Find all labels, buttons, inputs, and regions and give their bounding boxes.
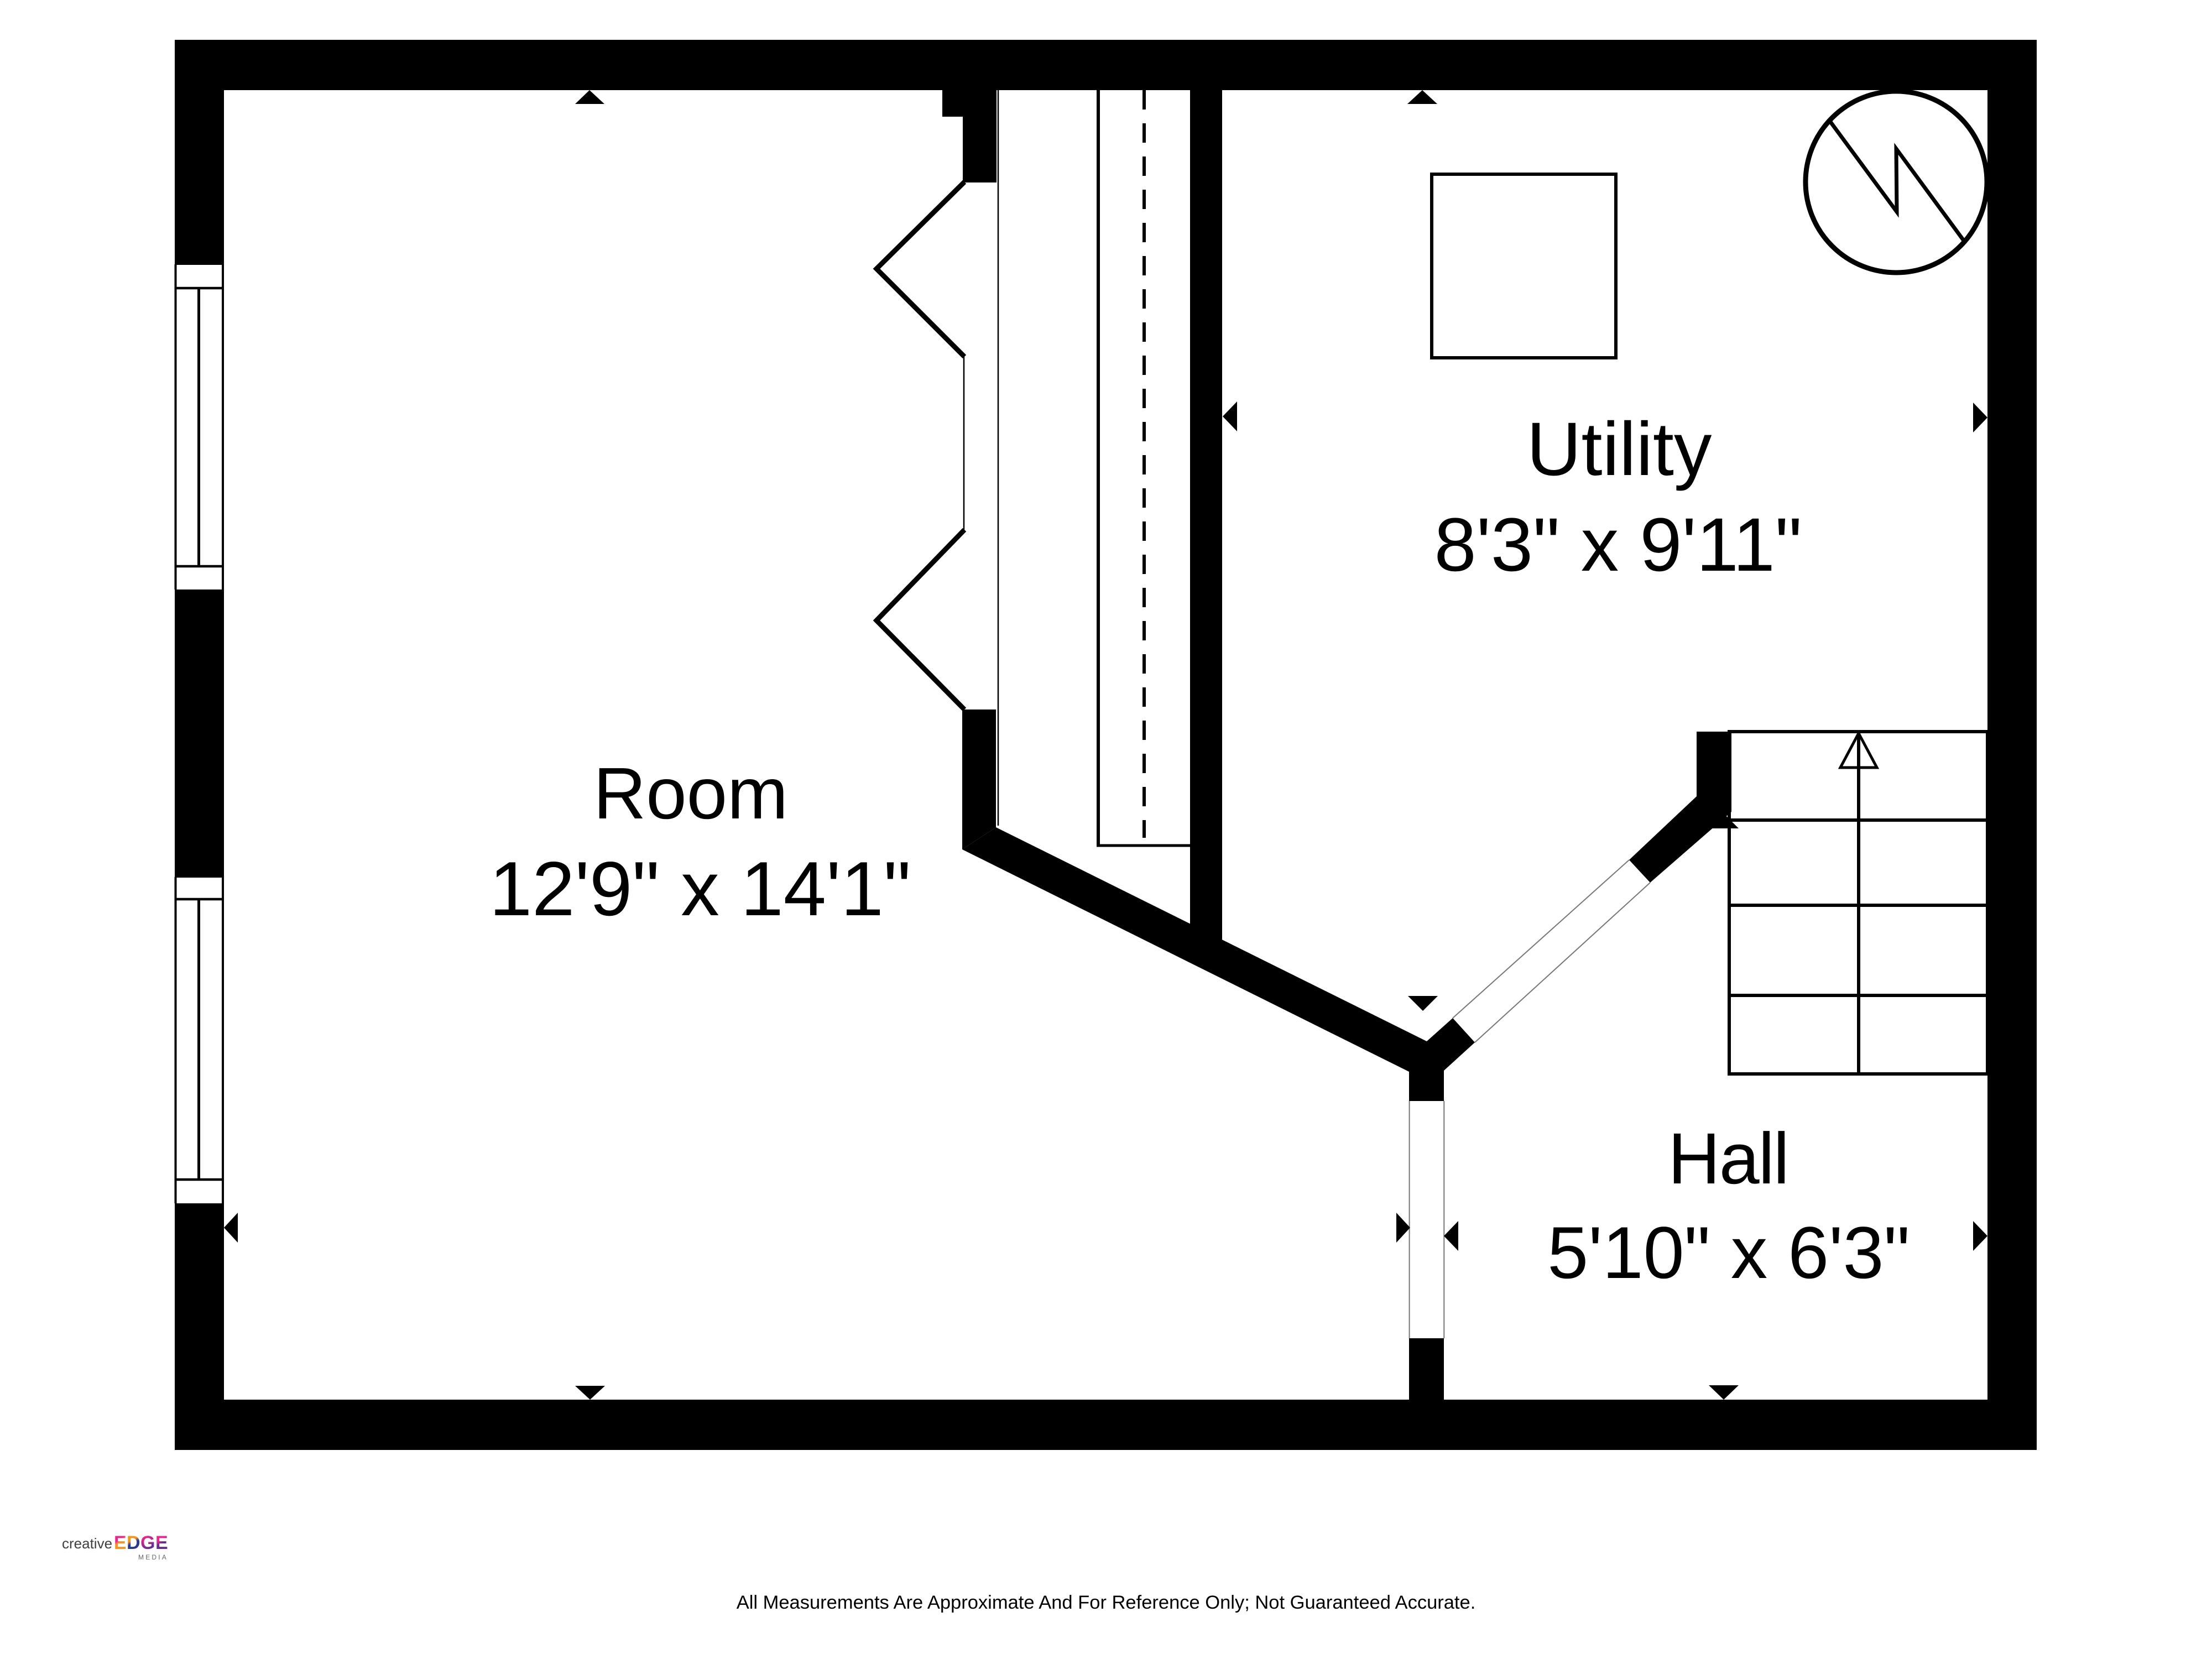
svg-text:8'3" x 9'11": 8'3" x 9'11" (1434, 503, 1802, 587)
svg-text:12'9" x 14'1": 12'9" x 14'1" (489, 846, 911, 932)
svg-text:G: G (140, 1532, 155, 1553)
svg-text:Room: Room (593, 753, 788, 834)
svg-text:Hall: Hall (1668, 1118, 1788, 1199)
svg-text:Utility: Utility (1527, 407, 1712, 492)
svg-text:All Measurements Are Approxima: All Measurements Are Approximate And For… (737, 1592, 1476, 1613)
svg-text:D: D (127, 1532, 140, 1553)
svg-text:E: E (114, 1532, 127, 1553)
svg-text:creative: creative (62, 1535, 112, 1552)
svg-text:5'10" x 6'3": 5'10" x 6'3" (1547, 1212, 1910, 1294)
svg-text:MEDIA: MEDIA (138, 1553, 168, 1561)
svg-text:E: E (155, 1532, 168, 1553)
